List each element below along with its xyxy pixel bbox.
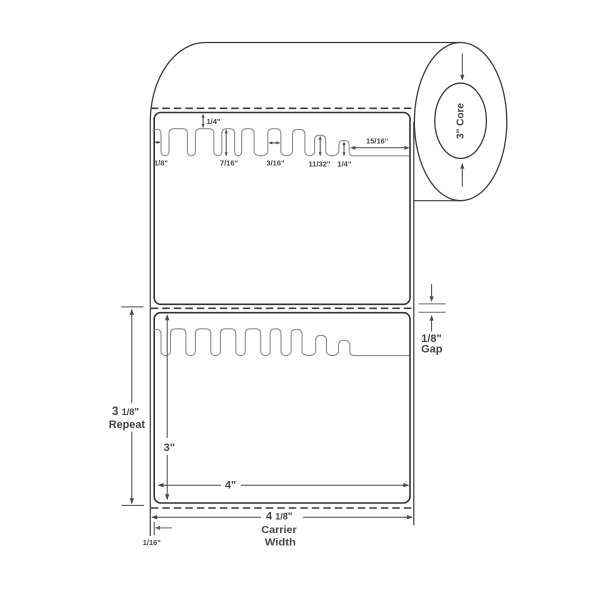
svg-text:Carrier: Carrier [261, 524, 296, 536]
svg-text:4": 4" [225, 480, 236, 492]
svg-text:3": 3" [164, 442, 175, 454]
svg-text:3/16": 3/16" [266, 158, 285, 167]
svg-text:3 1/8": 3 1/8" [112, 406, 139, 418]
svg-text:1/16": 1/16" [143, 538, 161, 547]
svg-text:1/4": 1/4" [207, 117, 221, 126]
svg-text:Width: Width [265, 536, 296, 548]
svg-text:Gap: Gap [421, 344, 443, 356]
svg-text:Repeat: Repeat [109, 419, 146, 431]
svg-text:7/16": 7/16" [220, 158, 239, 167]
svg-text:11/32": 11/32" [309, 159, 331, 168]
svg-text:1/8": 1/8" [154, 158, 168, 167]
svg-text:15/16": 15/16" [366, 137, 389, 146]
svg-text:1/4": 1/4" [337, 159, 351, 168]
svg-text:4 1/8": 4 1/8" [266, 511, 293, 523]
svg-text:3" Core: 3" Core [456, 103, 467, 139]
